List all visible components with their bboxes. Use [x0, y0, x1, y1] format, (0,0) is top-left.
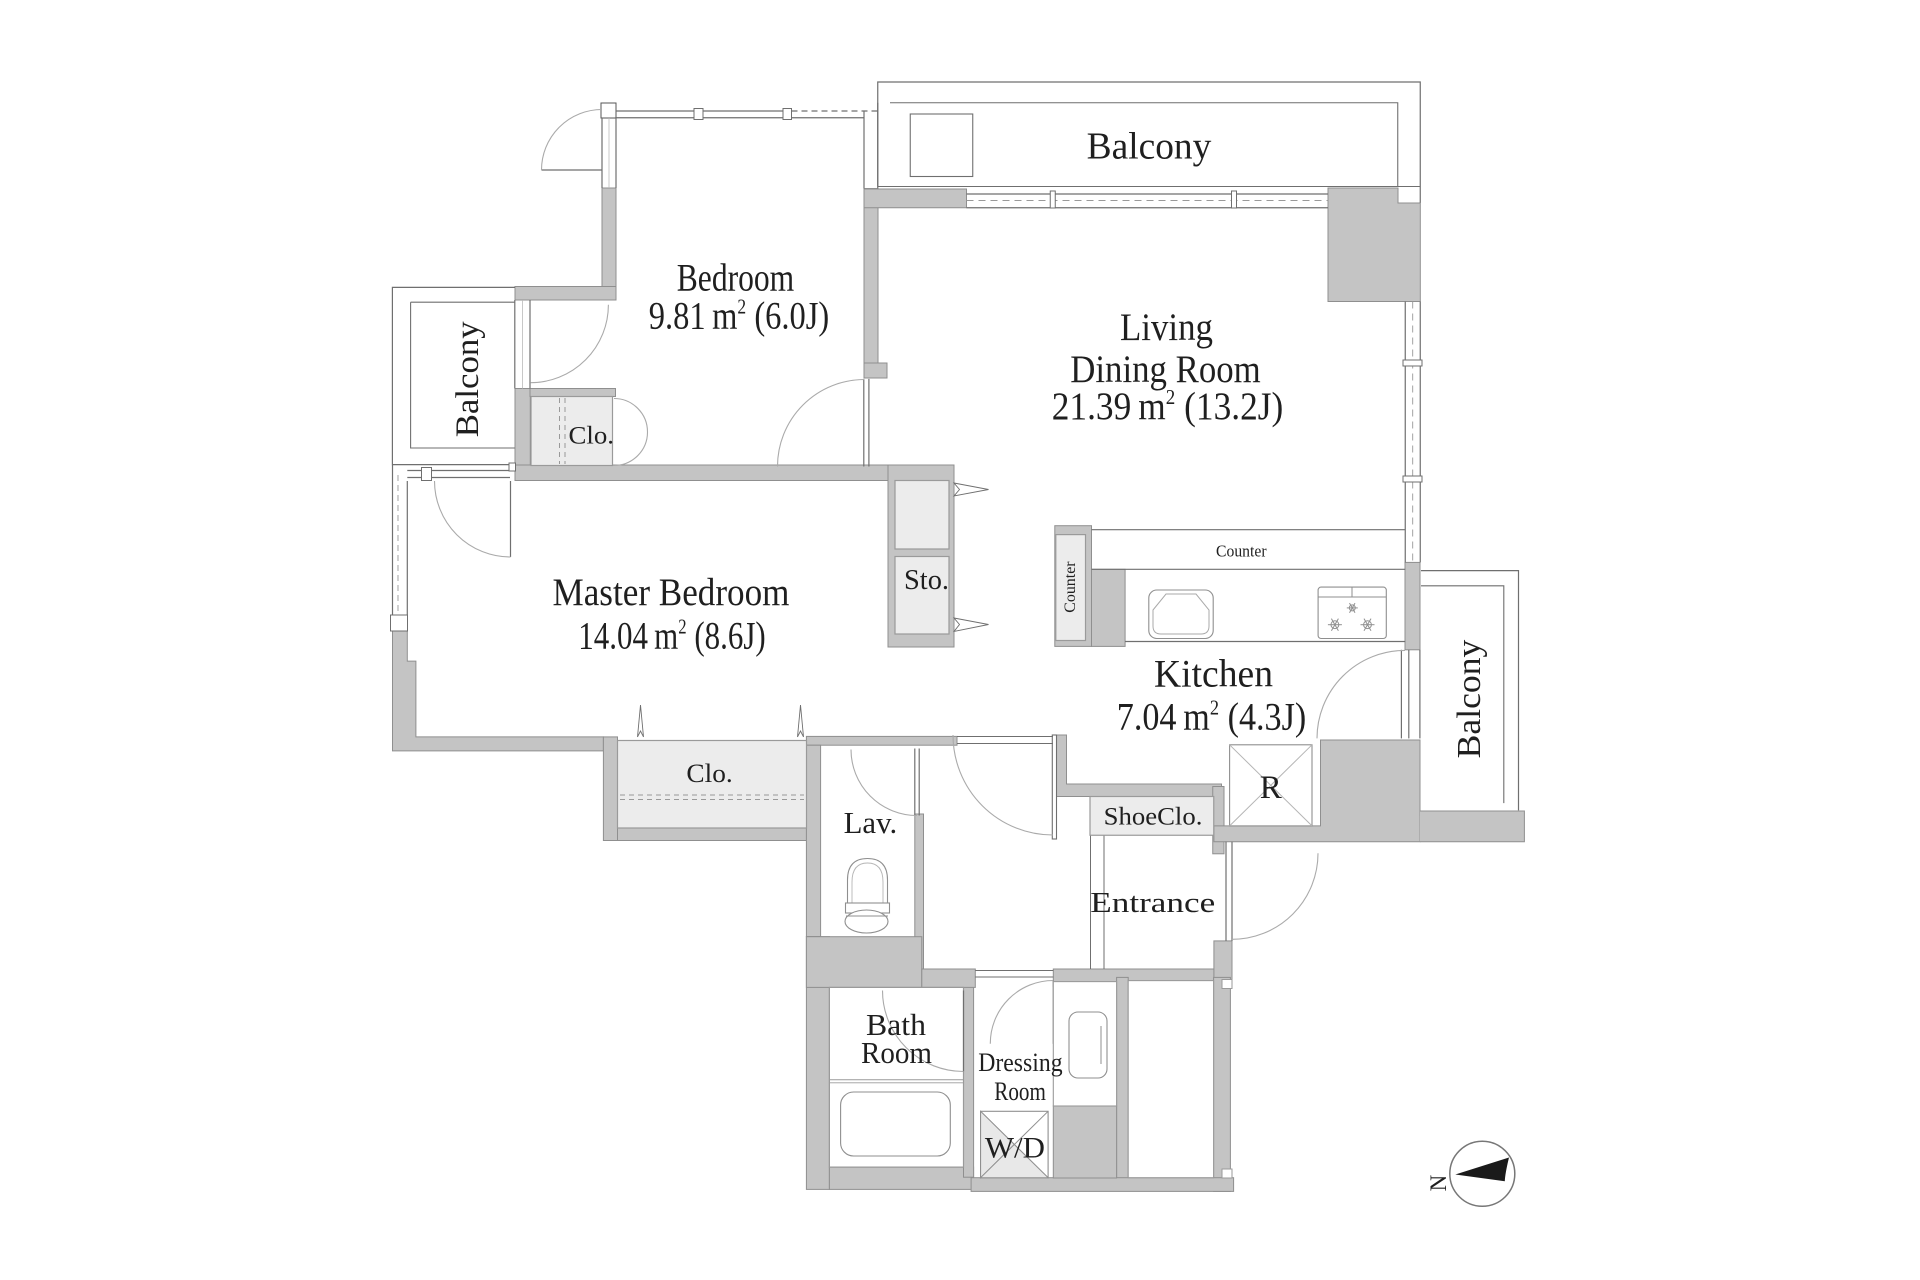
svg-text:Room: Room [994, 1077, 1046, 1106]
svg-text:Clo.: Clo. [686, 759, 732, 788]
svg-text:Bedroom: Bedroom [677, 257, 795, 300]
svg-text:N: N [1426, 1174, 1451, 1191]
svg-text:Kitchen: Kitchen [1154, 653, 1273, 696]
svg-text:Counter: Counter [1062, 561, 1079, 613]
svg-text:Sto.: Sto. [904, 565, 949, 596]
svg-text:Clo.: Clo. [569, 423, 615, 450]
svg-text:Dressing: Dressing [978, 1048, 1062, 1077]
svg-text:Living: Living [1120, 306, 1213, 349]
svg-text:Room: Room [861, 1035, 932, 1070]
svg-text:Balcony: Balcony [450, 321, 486, 438]
svg-text:Master Bedroom: Master Bedroom [553, 571, 790, 614]
svg-text:Lav.: Lav. [844, 805, 898, 840]
svg-text:ShoeClo.: ShoeClo. [1104, 804, 1203, 831]
svg-text:Entrance: Entrance [1090, 888, 1215, 919]
svg-text:Balcony: Balcony [1087, 126, 1212, 168]
svg-text:14.04 m2 (8.6J): 14.04 m2 (8.6J) [578, 615, 766, 658]
svg-text:R: R [1260, 770, 1282, 806]
svg-text:Balcony: Balcony [1451, 640, 1488, 759]
svg-text:W/D: W/D [985, 1132, 1045, 1165]
svg-text:Counter: Counter [1216, 542, 1267, 561]
